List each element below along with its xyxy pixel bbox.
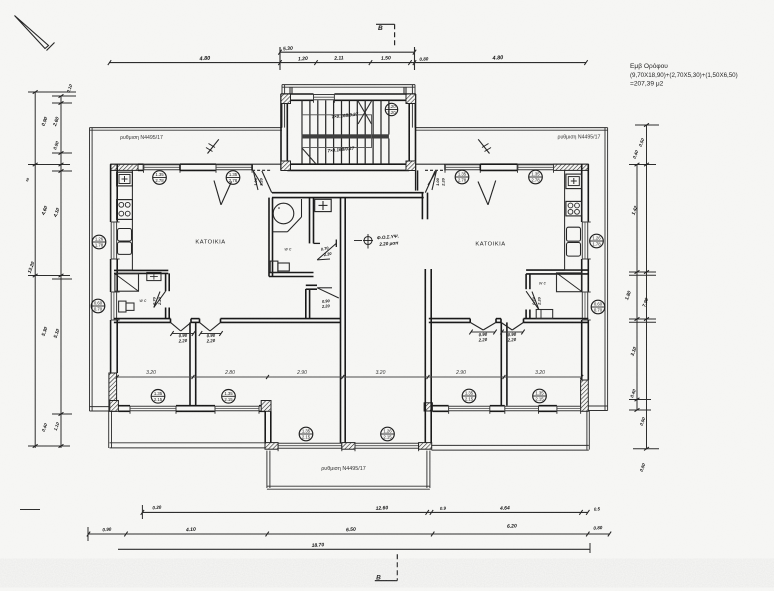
svg-text:2.11: 2.11 bbox=[333, 55, 344, 62]
svg-text:2.15: 2.15 bbox=[383, 435, 392, 440]
svg-text:1.35: 1.35 bbox=[531, 172, 540, 177]
svg-text:0.9: 0.9 bbox=[440, 506, 447, 511]
svg-text:7×0.168/0.27: 7×0.168/0.27 bbox=[331, 112, 359, 120]
svg-text:0.40: 0.40 bbox=[629, 388, 637, 398]
svg-text:3.20: 3.20 bbox=[376, 370, 386, 376]
svg-text:w c: w c bbox=[140, 298, 148, 303]
svg-text:0.50: 0.50 bbox=[638, 137, 646, 147]
svg-text:3.20: 3.20 bbox=[535, 370, 545, 376]
svg-text:1.35: 1.35 bbox=[155, 172, 164, 177]
svg-text:2.20: 2.20 bbox=[506, 337, 517, 343]
svg-text:2.78: 2.78 bbox=[229, 178, 238, 183]
svg-text:1.35: 1.35 bbox=[229, 172, 238, 177]
svg-text:2.78: 2.78 bbox=[531, 178, 540, 183]
svg-text:2.80: 2.80 bbox=[224, 370, 235, 376]
svg-text:1.20: 1.20 bbox=[298, 56, 308, 63]
svg-text:4.80: 4.80 bbox=[198, 56, 210, 63]
svg-text:6.20: 6.20 bbox=[507, 523, 517, 530]
svg-text:=207,39 μ2: =207,39 μ2 bbox=[630, 81, 664, 88]
svg-text:2.15: 2.15 bbox=[535, 397, 544, 402]
svg-text:(9,70X18,90)+(2,70X5,30)+(1,50: (9,70X18,90)+(2,70X5,30)+(1,50X6,50) bbox=[630, 72, 738, 79]
svg-text:5.30: 5.30 bbox=[41, 326, 50, 337]
svg-text:7.90: 7.90 bbox=[641, 297, 650, 308]
svg-text:0.90: 0.90 bbox=[41, 116, 50, 127]
svg-text:0.70: 0.70 bbox=[531, 296, 536, 305]
svg-text:0.80: 0.80 bbox=[639, 462, 647, 472]
svg-text:2.20: 2.20 bbox=[322, 251, 332, 258]
svg-text:1.35: 1.35 bbox=[154, 391, 163, 396]
svg-text:B: B bbox=[378, 25, 383, 32]
svg-text:1.78: 1.78 bbox=[592, 242, 601, 247]
svg-text:0.60: 0.60 bbox=[594, 302, 603, 307]
svg-text:2.15: 2.15 bbox=[224, 397, 233, 402]
svg-text:1.50: 1.50 bbox=[381, 55, 391, 62]
svg-text:0.70: 0.70 bbox=[94, 307, 103, 312]
svg-text:1.42: 1.42 bbox=[631, 205, 640, 216]
svg-text:1.00: 1.00 bbox=[253, 177, 258, 186]
svg-text:0.60: 0.60 bbox=[94, 301, 103, 306]
svg-text:2.20: 2.20 bbox=[441, 177, 446, 187]
svg-text:B: B bbox=[376, 575, 381, 582]
svg-text:1.35: 1.35 bbox=[458, 172, 467, 177]
svg-text:2.20: 2.20 bbox=[537, 296, 542, 306]
svg-text:4.60: 4.60 bbox=[40, 205, 49, 217]
svg-text:0.90: 0.90 bbox=[639, 416, 647, 426]
svg-text:1.35: 1.35 bbox=[302, 429, 311, 434]
svg-text:0.90: 0.90 bbox=[102, 527, 112, 533]
svg-text:0.80: 0.80 bbox=[593, 525, 603, 531]
svg-text:ρυθμιση Ν4495/17: ρυθμιση Ν4495/17 bbox=[321, 466, 366, 472]
svg-text:4.10: 4.10 bbox=[185, 527, 196, 534]
svg-text:1.20: 1.20 bbox=[387, 104, 396, 109]
svg-text:w c: w c bbox=[285, 247, 293, 252]
svg-text:2.78: 2.78 bbox=[458, 178, 467, 183]
svg-text:2.90: 2.90 bbox=[455, 370, 466, 376]
svg-text:ρυθμιση Ν4495/17: ρυθμιση Ν4495/17 bbox=[120, 135, 163, 141]
svg-text:2.20 μαπ: 2.20 μαπ bbox=[378, 240, 399, 247]
svg-text:1.10: 1.10 bbox=[53, 421, 61, 431]
svg-text:5.30: 5.30 bbox=[283, 46, 293, 53]
svg-text:6.50: 6.50 bbox=[346, 527, 356, 534]
svg-text:3.20: 3.20 bbox=[146, 370, 156, 376]
svg-text:2.20: 2.20 bbox=[157, 296, 162, 306]
svg-text:2.15: 2.15 bbox=[154, 397, 163, 402]
svg-text:5.10: 5.10 bbox=[53, 328, 62, 339]
svg-text:1.26: 1.26 bbox=[383, 429, 392, 434]
svg-text:4.10: 4.10 bbox=[52, 207, 61, 219]
svg-text:4.64: 4.64 bbox=[499, 505, 510, 512]
svg-text:1.20: 1.20 bbox=[387, 110, 396, 115]
svg-text:12.60: 12.60 bbox=[375, 505, 388, 512]
svg-text:0.70: 0.70 bbox=[152, 296, 157, 305]
svg-text:1.00: 1.00 bbox=[435, 177, 440, 186]
svg-text:0.90: 0.90 bbox=[52, 140, 60, 150]
svg-text:1.26: 1.26 bbox=[95, 237, 104, 242]
svg-text:1.26: 1.26 bbox=[592, 236, 601, 241]
svg-text:0.80: 0.80 bbox=[419, 56, 429, 62]
svg-text:1.78: 1.78 bbox=[95, 243, 104, 248]
svg-text:2.20: 2.20 bbox=[177, 338, 188, 344]
svg-text:2.15: 2.15 bbox=[465, 397, 474, 402]
svg-text:0.20: 0.20 bbox=[152, 505, 162, 511]
svg-text:1.35: 1.35 bbox=[535, 391, 544, 396]
svg-text:ΚΑΤΟΙΚΙΑ: ΚΑΤΟΙΚΙΑ bbox=[195, 240, 225, 246]
svg-text:2.78: 2.78 bbox=[155, 178, 164, 183]
svg-text:2.90: 2.90 bbox=[296, 370, 307, 376]
svg-text:0.5: 0.5 bbox=[594, 506, 601, 511]
svg-text:2.20: 2.20 bbox=[205, 338, 216, 344]
svg-text:0.70: 0.70 bbox=[594, 308, 603, 313]
svg-text:2.15: 2.15 bbox=[302, 435, 311, 440]
svg-text:1.80: 1.80 bbox=[624, 290, 633, 301]
svg-text:2.60: 2.60 bbox=[52, 116, 61, 128]
svg-text:ω: ω bbox=[24, 177, 30, 182]
svg-text:Εμβ Ορόφου: Εμβ Ορόφου bbox=[630, 62, 668, 70]
svg-text:ΚΑΤΟΙΚΙΑ: ΚΑΤΟΙΚΙΑ bbox=[475, 242, 505, 248]
svg-text:1.35: 1.35 bbox=[465, 391, 474, 396]
svg-text:2.20: 2.20 bbox=[477, 337, 488, 343]
svg-text:w c: w c bbox=[539, 280, 547, 285]
svg-text:ρυθμιση Ν4495/17: ρυθμιση Ν4495/17 bbox=[558, 135, 601, 141]
svg-text:4.80: 4.80 bbox=[491, 55, 503, 62]
svg-text:2.20: 2.20 bbox=[321, 303, 331, 309]
svg-text:1.35: 1.35 bbox=[224, 391, 233, 396]
svg-text:0.40: 0.40 bbox=[41, 422, 49, 432]
svg-text:2.20: 2.20 bbox=[259, 177, 264, 187]
svg-text:0.40: 0.40 bbox=[632, 149, 640, 159]
svg-text:18.70: 18.70 bbox=[311, 542, 324, 549]
